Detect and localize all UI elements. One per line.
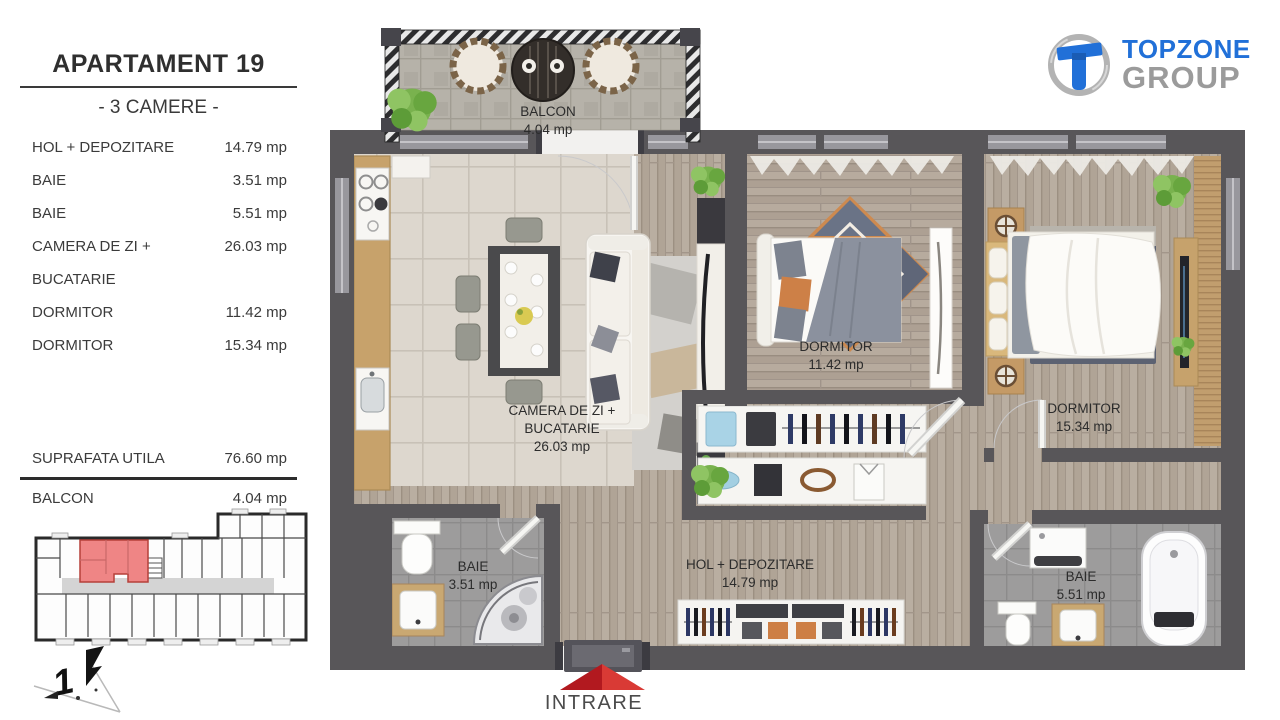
floorplan-page: APARTAMENT 19 - 3 CAMERE - HOL + DEPOZIT… <box>0 0 1280 720</box>
living-room-label: CAMERA DE ZI + BUCATARIE 26.03 mp <box>509 402 616 455</box>
bed-bedroom1 <box>757 234 901 346</box>
total-usable-label: SUPRAFATA UTILA <box>32 450 165 467</box>
room-label: DORMITOR <box>32 304 113 321</box>
total-usable-row: SUPRAFATA UTILA 76.60 mp <box>20 450 297 480</box>
room-area: 15.34 mp <box>224 337 287 354</box>
room-label: CAMERA DE ZI + <box>32 238 151 255</box>
minimap-staircase <box>148 558 162 578</box>
bedroom2-tv-unit <box>1174 238 1198 386</box>
apartment-title: APARTAMENT 19 <box>20 50 297 88</box>
room-area: 26.03 mp <box>224 238 287 255</box>
room-area: 3.51 mp <box>233 172 287 189</box>
closet-wardrobe-upper <box>698 406 926 452</box>
bath1-label: BAIE 3.51 mp <box>449 558 498 594</box>
bathroom-vanity-icon <box>392 584 444 636</box>
stove-icon <box>356 168 389 240</box>
bed-bedroom2 <box>986 232 1161 358</box>
building-minimap <box>22 500 314 658</box>
bedroom1-dresser <box>930 228 952 388</box>
balcony-table-icon <box>512 39 574 101</box>
room-list-item: DORMITOR 15.34 mp <box>20 337 297 354</box>
hall-label: HOL + DEPOZITARE 14.79 mp <box>686 556 814 592</box>
floor-plan-graphic <box>330 28 1248 700</box>
minimap-apartment-highlight <box>80 540 148 582</box>
bedroom2-label: DORMITOR 15.34 mp <box>1047 400 1120 436</box>
room-label: HOL + DEPOZITARE <box>32 139 174 156</box>
bedroom1-label: DORMITOR 11.42 mp <box>799 338 872 374</box>
room-area: 14.79 mp <box>224 139 287 156</box>
room-label: BUCATARIE <box>32 271 116 288</box>
washing-machine-icon <box>1030 528 1086 568</box>
bathtub-icon <box>1142 532 1206 646</box>
room-label: DORMITOR <box>32 337 113 354</box>
bathroom-vanity-icon <box>1052 604 1104 646</box>
room-list-item: HOL + DEPOZITARE 14.79 mp <box>20 139 297 156</box>
total-usable-area: 76.60 mp <box>224 450 287 467</box>
sofa <box>586 234 650 430</box>
room-list-item: BAIE 3.51 mp <box>20 172 297 189</box>
info-panel: APARTAMENT 19 - 3 CAMERE - HOL + DEPOZIT… <box>20 50 297 370</box>
room-label: BAIE <box>32 172 66 189</box>
kitchen-sink-icon <box>356 368 389 430</box>
room-list-item: BUCATARIE <box>20 271 297 288</box>
apartment-subtitle: - 3 CAMERE - <box>20 97 297 119</box>
north-arrow-icon: 1 <box>28 646 128 718</box>
room-list-item: BAIE 5.51 mp <box>20 205 297 222</box>
hall-wardrobe <box>678 600 904 644</box>
balcony-label: BALCON 4.04 mp <box>520 103 576 139</box>
closet-wardrobe-lower <box>698 458 926 504</box>
room-list-item: DORMITOR 11.42 mp <box>20 304 297 321</box>
room-list-item: CAMERA DE ZI + 26.03 mp <box>20 238 297 255</box>
room-area: 5.51 mp <box>233 205 287 222</box>
room-label: BAIE <box>32 205 66 222</box>
room-list: HOL + DEPOZITARE 14.79 mp BAIE 3.51 mp B… <box>20 139 297 354</box>
bath2-label: BAIE 5.51 mp <box>1057 568 1106 604</box>
room-area: 11.42 mp <box>226 304 287 321</box>
entrance-label: INTRARE <box>545 692 643 715</box>
